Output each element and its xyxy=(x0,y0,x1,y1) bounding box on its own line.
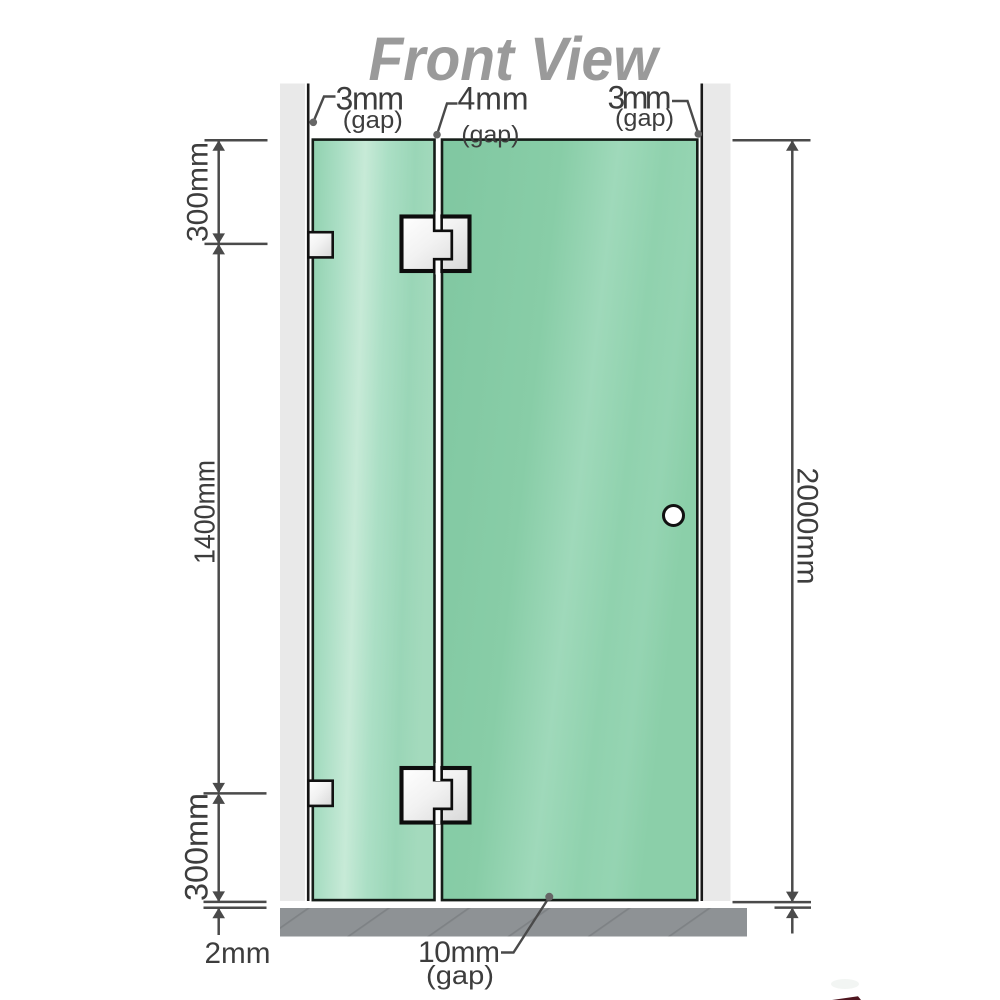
svg-text:1400mm: 1400mm xyxy=(190,460,222,564)
svg-text:300mm: 300mm xyxy=(179,793,215,901)
svg-text:2mm: 2mm xyxy=(205,937,271,970)
svg-text:4mm: 4mm xyxy=(458,81,529,117)
svg-text:300mm: 300mm xyxy=(182,142,215,242)
svg-text:(gap): (gap) xyxy=(461,122,519,149)
svg-text:(gap): (gap) xyxy=(615,105,674,132)
svg-text:(gap): (gap) xyxy=(343,107,403,134)
svg-text:2000mm: 2000mm xyxy=(791,468,824,585)
svg-text:(gap): (gap) xyxy=(426,960,494,990)
